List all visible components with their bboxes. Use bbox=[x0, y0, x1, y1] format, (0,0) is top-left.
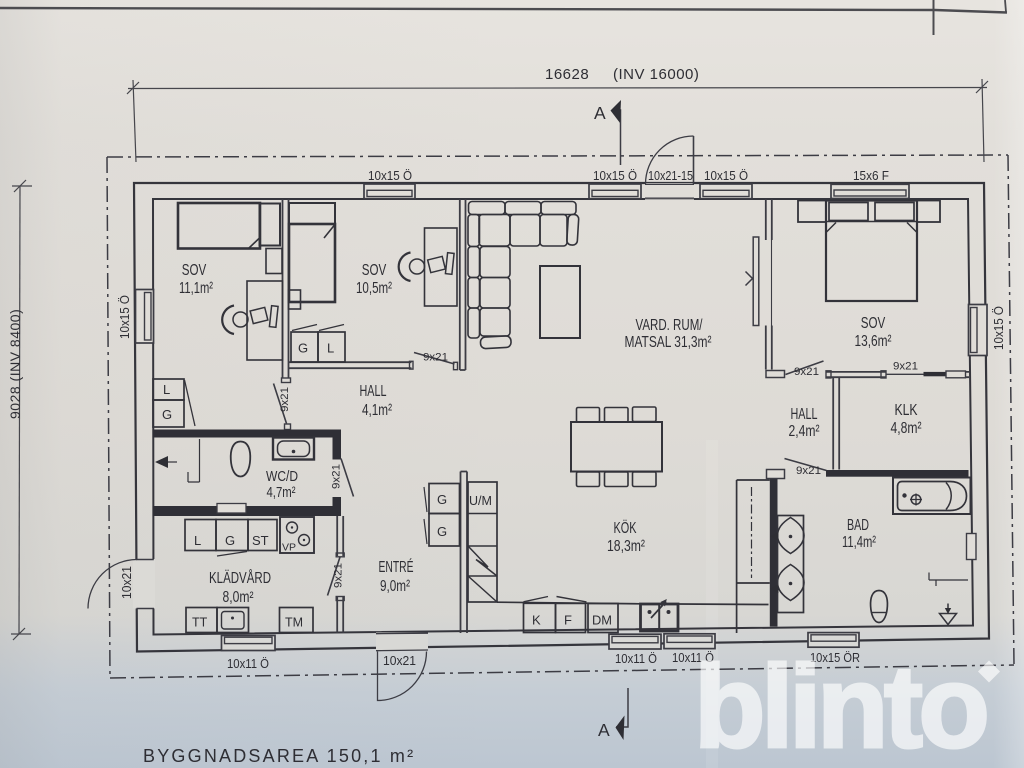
svg-text:10x15 Ö: 10x15 Ö bbox=[118, 295, 132, 339]
svg-text:9x21: 9x21 bbox=[893, 361, 918, 373]
svg-text:L: L bbox=[194, 533, 201, 548]
svg-text:KÖK: KÖK bbox=[614, 519, 637, 537]
svg-text:A: A bbox=[594, 103, 606, 123]
svg-text:8,0m²: 8,0m² bbox=[223, 589, 254, 606]
svg-text:TM: TM bbox=[285, 616, 303, 630]
svg-text:9028 (INV 8400): 9028 (INV 8400) bbox=[7, 309, 23, 419]
svg-text:K: K bbox=[532, 613, 541, 628]
svg-text:10x15 Ö: 10x15 Ö bbox=[593, 169, 637, 183]
svg-text:KLK: KLK bbox=[895, 402, 918, 419]
svg-text:MATSAL 31,3m²: MATSAL 31,3m² bbox=[625, 334, 712, 351]
svg-text:WC/D: WC/D bbox=[266, 468, 298, 485]
svg-text:blinto: blinto bbox=[694, 641, 985, 768]
svg-text:10x21: 10x21 bbox=[383, 654, 416, 668]
svg-text:4,7m²: 4,7m² bbox=[267, 484, 296, 501]
svg-text:11,1m²: 11,1m² bbox=[179, 280, 213, 297]
svg-text:SOV: SOV bbox=[362, 262, 387, 279]
svg-text:G: G bbox=[298, 341, 308, 356]
svg-text:SOV: SOV bbox=[182, 262, 207, 279]
svg-text:9x21: 9x21 bbox=[794, 366, 819, 378]
svg-text:G: G bbox=[225, 533, 235, 548]
svg-text:G: G bbox=[437, 524, 447, 539]
svg-text:10x11 Ö: 10x11 Ö bbox=[615, 652, 657, 666]
svg-text:L: L bbox=[163, 382, 170, 397]
svg-text:10,5m²: 10,5m² bbox=[356, 280, 392, 297]
svg-text:ST: ST bbox=[252, 533, 269, 548]
svg-text:9x21: 9x21 bbox=[796, 465, 821, 477]
svg-text:10x15 Ö: 10x15 Ö bbox=[368, 169, 412, 183]
svg-text:HALL: HALL bbox=[791, 406, 818, 423]
svg-text:10x21: 10x21 bbox=[120, 566, 134, 599]
svg-text:9x21: 9x21 bbox=[423, 352, 448, 364]
svg-text:TT: TT bbox=[192, 616, 208, 630]
svg-text:A: A bbox=[598, 720, 610, 740]
svg-text:L: L bbox=[327, 341, 334, 356]
svg-text:4,1m²: 4,1m² bbox=[362, 402, 392, 419]
svg-text:10x11 Ö: 10x11 Ö bbox=[227, 657, 269, 671]
svg-text:10x15 Ö: 10x15 Ö bbox=[704, 169, 748, 183]
svg-text:F: F bbox=[564, 613, 572, 628]
svg-text:VP: VP bbox=[282, 542, 296, 554]
svg-text:11,4m²: 11,4m² bbox=[842, 534, 876, 551]
svg-text:9x21: 9x21 bbox=[279, 387, 291, 412]
svg-text:10x21-15: 10x21-15 bbox=[648, 169, 693, 183]
svg-text:VARD. RUM/: VARD. RUM/ bbox=[636, 317, 703, 334]
svg-text:2,4m²: 2,4m² bbox=[789, 423, 821, 440]
svg-text:10x15 Ö: 10x15 Ö bbox=[992, 306, 1006, 350]
svg-text:DM: DM bbox=[592, 613, 612, 628]
svg-text:(INV 16000): (INV 16000) bbox=[613, 66, 699, 83]
svg-text:BAD: BAD bbox=[847, 517, 869, 534]
svg-text:SOV: SOV bbox=[861, 315, 886, 332]
svg-text:BYGGNADSAREA 150,1 m²: BYGGNADSAREA 150,1 m² bbox=[143, 746, 415, 766]
svg-text:U/M: U/M bbox=[469, 494, 492, 508]
svg-text:9x21: 9x21 bbox=[333, 563, 345, 588]
svg-text:15x6 F: 15x6 F bbox=[853, 169, 889, 183]
svg-text:G: G bbox=[437, 492, 447, 507]
svg-text:9x21: 9x21 bbox=[331, 464, 343, 489]
svg-text:HALL: HALL bbox=[360, 383, 387, 400]
svg-text:13,6m²: 13,6m² bbox=[855, 333, 892, 350]
svg-text:ENTRÉ: ENTRÉ bbox=[379, 557, 414, 576]
svg-text:G: G bbox=[162, 407, 172, 422]
svg-text:9,0m²: 9,0m² bbox=[380, 578, 410, 595]
svg-text:18,3m²: 18,3m² bbox=[607, 538, 646, 555]
svg-text:4,8m²: 4,8m² bbox=[891, 420, 923, 437]
svg-text:16628: 16628 bbox=[545, 66, 589, 83]
svg-text:KLÄDVÅRD: KLÄDVÅRD bbox=[209, 570, 271, 587]
